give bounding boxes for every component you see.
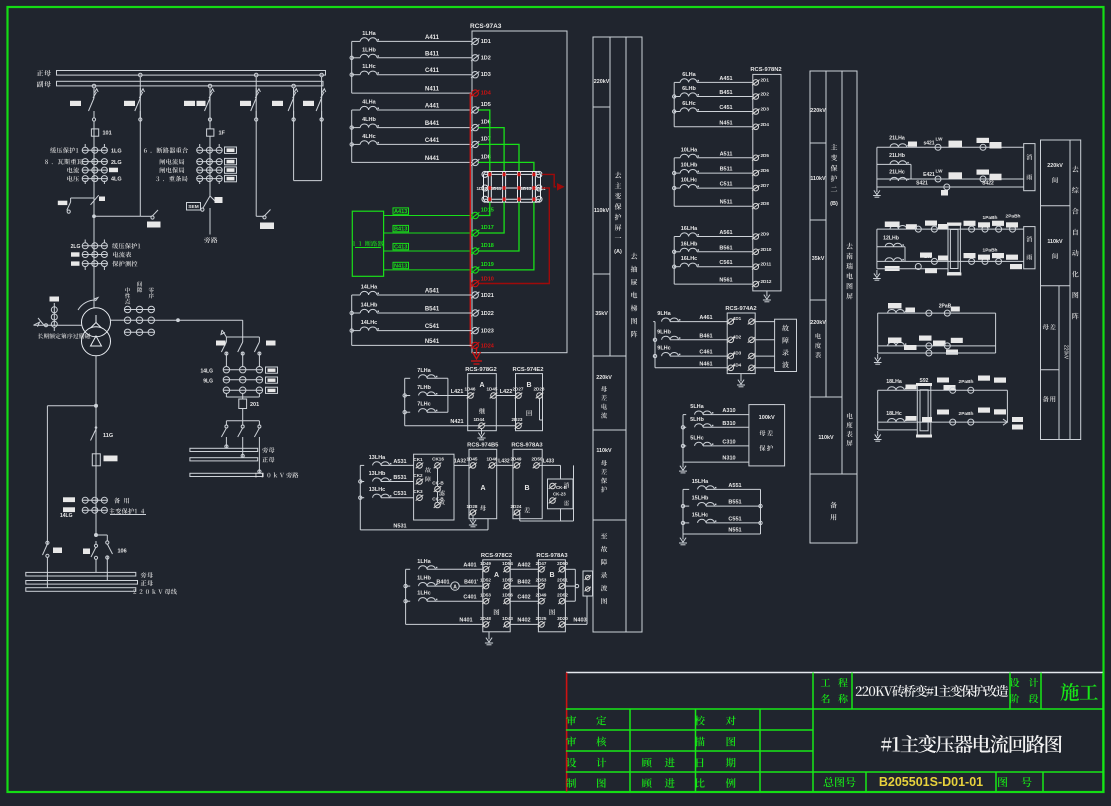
svg-text:N531: N531	[393, 524, 406, 530]
svg-text:9LHb: 9LHb	[657, 329, 671, 335]
svg-text:1D45: 1D45	[467, 457, 478, 462]
svg-text:2D7: 2D7	[761, 183, 770, 188]
svg-text:C441: C441	[425, 138, 440, 144]
svg-text:2LG: 2LG	[71, 244, 81, 250]
svg-text:3D20: 3D20	[557, 616, 568, 621]
svg-text:1D56: 1D56	[502, 593, 513, 598]
svg-text:21LHc: 21LHc	[889, 170, 905, 176]
svg-text:2D25: 2D25	[536, 616, 547, 621]
svg-text:1D24: 1D24	[481, 343, 495, 349]
svg-text:13LHb: 13LHb	[369, 471, 386, 477]
svg-text:C402: C402	[517, 594, 530, 600]
svg-text:RCS-974A2: RCS-974A2	[725, 306, 756, 312]
svg-text:A402: A402	[517, 563, 530, 569]
svg-text:106: 106	[118, 549, 127, 555]
svg-text:B461: B461	[699, 333, 712, 339]
svg-text:A461: A461	[699, 315, 712, 321]
svg-text:A: A	[479, 382, 484, 389]
svg-text:10LHb: 10LHb	[681, 163, 698, 169]
svg-text:2D8: 2D8	[761, 201, 770, 206]
svg-text:RCS-978A3: RCS-978A3	[511, 443, 543, 449]
svg-text:1D43: 1D43	[502, 616, 513, 621]
svg-text:21LHb: 21LHb	[889, 153, 905, 159]
svg-text:2D3: 2D3	[761, 107, 770, 112]
svg-text:S422: S422	[982, 181, 994, 187]
svg-text:9LHa: 9LHa	[657, 311, 671, 317]
svg-text:2D10: 2D10	[761, 247, 772, 252]
svg-text:5LHb: 5LHb	[690, 417, 704, 423]
svg-text:N561: N561	[719, 278, 732, 284]
svg-text:1D21: 1D21	[481, 293, 494, 299]
svg-text:220kV: 220kV	[810, 108, 826, 114]
svg-text:N461: N461	[699, 361, 712, 367]
svg-text:5LHc: 5LHc	[690, 435, 703, 441]
svg-text:2PaBh: 2PaBh	[959, 411, 974, 417]
svg-text:N402: N402	[517, 618, 530, 624]
svg-text:10LHc: 10LHc	[681, 178, 698, 184]
svg-text:1F: 1F	[219, 131, 226, 137]
svg-text:SEM: SEM	[188, 204, 198, 210]
svg-text:s421: s421	[923, 141, 934, 147]
svg-text:1D28: 1D28	[467, 504, 478, 509]
svg-text:2D24: 2D24	[511, 504, 522, 509]
svg-text:1D11: 1D11	[491, 186, 502, 191]
svg-text:2D51: 2D51	[557, 578, 568, 583]
svg-text:1D15: 1D15	[481, 208, 494, 214]
svg-text:2D50: 2D50	[557, 561, 568, 566]
svg-text:15LHa: 15LHa	[692, 479, 709, 485]
svg-text:110kV: 110kV	[594, 208, 610, 214]
svg-text:1D52: 1D52	[480, 578, 491, 583]
svg-text:1LHb: 1LHb	[417, 576, 431, 582]
svg-text:B441: B441	[425, 121, 440, 127]
svg-text:16LHa: 16LHa	[681, 226, 698, 232]
svg-text:1D10: 1D10	[481, 277, 494, 283]
svg-text:CK-B: CK-B	[432, 497, 444, 502]
svg-text:1LHb: 1LHb	[362, 47, 376, 53]
svg-text:B401': B401'	[464, 580, 478, 586]
svg-text:4D1: 4D1	[733, 316, 742, 321]
svg-text:220kV: 220kV	[594, 79, 610, 85]
svg-text:1D18: 1D18	[481, 243, 494, 249]
svg-text:LW: LW	[936, 137, 944, 142]
svg-text:7LHb: 7LHb	[417, 385, 431, 391]
svg-text:N551: N551	[728, 528, 741, 534]
svg-text:35kV: 35kV	[595, 311, 608, 317]
svg-text:1LHa: 1LHa	[362, 31, 376, 37]
svg-text:A531: A531	[393, 459, 406, 465]
svg-text:1D23: 1D23	[481, 329, 494, 335]
svg-text:2PaBh: 2PaBh	[959, 379, 974, 385]
svg-text:110kV: 110kV	[810, 176, 826, 182]
svg-text:4LHc: 4LHc	[362, 134, 375, 140]
svg-text:2PaB: 2PaB	[939, 304, 952, 310]
svg-text:101: 101	[103, 131, 112, 137]
svg-text:12LHb: 12LHb	[883, 236, 899, 242]
svg-text:220kV: 220kV	[810, 320, 826, 326]
svg-text:N403: N403	[573, 618, 586, 624]
svg-text:9LHc: 9LHc	[657, 346, 670, 352]
svg-text:1D55: 1D55	[502, 578, 513, 583]
svg-text:LW: LW	[936, 169, 944, 174]
svg-text:B411: B411	[425, 51, 440, 57]
svg-text:A561: A561	[719, 230, 732, 236]
svg-text:18LHa: 18LHa	[886, 379, 902, 385]
svg-text:A: A	[480, 485, 485, 492]
svg-text:35kV: 35kV	[812, 256, 825, 262]
svg-text:2D11: 2D11	[761, 262, 772, 267]
svg-text:A441: A441	[425, 104, 440, 110]
svg-text:2LG: 2LG	[111, 160, 122, 166]
svg-text:14LG: 14LG	[60, 513, 73, 519]
svg-text:7LHa: 7LHa	[417, 368, 431, 374]
svg-text:L433: L433	[543, 459, 555, 465]
svg-text:100kV: 100kV	[759, 415, 775, 421]
svg-text:2D6: 2D6	[761, 168, 770, 173]
svg-text:E421: E421	[923, 172, 935, 178]
svg-text:1D53: 1D53	[480, 593, 491, 598]
svg-text:2D27: 2D27	[513, 387, 524, 392]
svg-text:B551: B551	[728, 500, 741, 506]
svg-text:1LG: 1LG	[111, 149, 122, 155]
svg-text:N411: N411	[425, 87, 440, 93]
svg-text:L421: L421	[451, 389, 464, 395]
svg-text:9LG: 9LG	[203, 379, 213, 385]
svg-text:4LG: 4LG	[111, 177, 122, 183]
svg-text:C310: C310	[722, 439, 735, 445]
svg-text:C511: C511	[720, 182, 733, 188]
svg-text:4LHa: 4LHa	[362, 100, 376, 106]
svg-text:C541: C541	[425, 324, 440, 330]
svg-text:1PaBh: 1PaBh	[983, 215, 998, 221]
svg-text:B541: B541	[425, 307, 440, 313]
svg-text:1D45: 1D45	[487, 387, 498, 392]
svg-text:B413: B413	[394, 227, 407, 233]
svg-text:C411: C411	[425, 68, 440, 74]
svg-text:B511: B511	[720, 167, 733, 173]
svg-text:C461: C461	[699, 350, 712, 356]
svg-text:1D4: 1D4	[481, 91, 492, 97]
svg-text:5LHa: 5LHa	[690, 404, 704, 410]
svg-text:CK16: CK16	[432, 457, 444, 462]
svg-text:B: B	[549, 572, 554, 579]
svg-text:2D47: 2D47	[536, 561, 547, 566]
svg-text:N451: N451	[719, 120, 732, 126]
svg-text:A: A	[494, 572, 499, 579]
svg-text:CK-23: CK-23	[553, 492, 566, 497]
svg-text:2PaBh: 2PaBh	[1006, 214, 1021, 220]
svg-text:S421: S421	[916, 181, 928, 187]
svg-text:A310: A310	[722, 408, 735, 414]
svg-text:18LHc: 18LHc	[886, 411, 902, 417]
svg-text:1D19: 1D19	[481, 262, 494, 268]
svg-text:1D44: 1D44	[474, 417, 485, 422]
svg-text:N511: N511	[720, 200, 733, 206]
svg-text:220kV: 220kV	[596, 375, 612, 381]
svg-text:14LHb: 14LHb	[361, 303, 378, 309]
svg-text:14LHa: 14LHa	[361, 285, 378, 291]
svg-text:16LHc: 16LHc	[681, 256, 698, 262]
svg-text:4D2: 4D2	[733, 334, 742, 339]
svg-text:6LHa: 6LHa	[682, 72, 696, 78]
svg-text:15LHc: 15LHc	[692, 512, 709, 518]
svg-text:1LHc: 1LHc	[362, 64, 375, 70]
svg-text:CK-B: CK-B	[432, 481, 444, 486]
svg-text:6LHc: 6LHc	[682, 101, 695, 107]
svg-text:2D5: 2D5	[761, 153, 770, 158]
svg-text:1PaBh: 1PaBh	[983, 248, 998, 254]
svg-text:1A32: 1A32	[454, 459, 466, 465]
svg-text:1D2: 1D2	[481, 55, 491, 61]
svg-text:1D13: 1D13	[521, 186, 532, 191]
svg-text:(A): (A)	[614, 249, 622, 255]
svg-text:1LHa: 1LHa	[417, 559, 431, 565]
svg-text:B310: B310	[722, 421, 735, 427]
svg-text:CK2: CK2	[413, 473, 423, 478]
svg-text:A541: A541	[425, 289, 440, 295]
svg-text:4LHb: 4LHb	[362, 117, 376, 123]
svg-text:1D46: 1D46	[465, 387, 476, 392]
svg-text:1D22: 1D22	[481, 311, 494, 317]
svg-text:2D1: 2D1	[761, 77, 770, 82]
svg-text:14LHc: 14LHc	[361, 320, 378, 326]
svg-text:A551: A551	[728, 483, 741, 489]
svg-text:2D4: 2D4	[761, 122, 770, 127]
svg-text:CK-B: CK-B	[556, 485, 567, 490]
svg-text:1D3: 1D3	[481, 72, 491, 78]
svg-text:1D49: 1D49	[480, 561, 491, 566]
svg-text:1D5: 1D5	[481, 102, 491, 108]
svg-text:13LHa: 13LHa	[369, 455, 386, 461]
svg-text:21LHa: 21LHa	[889, 136, 905, 142]
svg-text:220kV: 220kV	[1063, 345, 1069, 360]
svg-text:220kV: 220kV	[1047, 163, 1063, 169]
svg-text:C551: C551	[728, 516, 741, 522]
svg-text:C413: C413	[394, 245, 407, 251]
svg-text:A451: A451	[719, 76, 732, 82]
svg-text:2D48: 2D48	[480, 616, 491, 621]
svg-text:2D49: 2D49	[536, 593, 547, 598]
svg-text:B402: B402	[517, 579, 530, 585]
svg-text:11G: 11G	[103, 433, 113, 439]
svg-text:CK1: CK1	[413, 457, 423, 462]
svg-text:2D52: 2D52	[557, 593, 568, 598]
svg-text:C531: C531	[393, 491, 406, 497]
svg-text:1LHc: 1LHc	[417, 591, 430, 597]
svg-text:2D12: 2D12	[761, 279, 772, 284]
svg-text:A413: A413	[394, 209, 407, 215]
svg-text:N310: N310	[722, 456, 735, 462]
svg-text:N421: N421	[450, 419, 463, 425]
svg-text:N401: N401	[459, 618, 472, 624]
svg-text:14LG: 14LG	[200, 369, 213, 375]
svg-text:A511: A511	[720, 151, 733, 157]
svg-text:1D12: 1D12	[477, 186, 488, 191]
svg-text:2D50: 2D50	[532, 457, 543, 462]
svg-text:1D54: 1D54	[502, 561, 513, 566]
svg-text:6LHb: 6LHb	[682, 86, 696, 92]
svg-text:1D1: 1D1	[481, 39, 491, 45]
svg-text:B531: B531	[393, 475, 406, 481]
svg-text:2D23: 2D23	[512, 417, 523, 422]
svg-text:4D4: 4D4	[733, 362, 742, 367]
svg-text:16LHb: 16LHb	[681, 241, 698, 247]
svg-text:7LHc: 7LHc	[417, 402, 430, 408]
svg-text:(B): (B)	[830, 201, 838, 207]
svg-text:CK3: CK3	[413, 489, 423, 494]
svg-text:110kV: 110kV	[1047, 239, 1063, 245]
svg-text:L432: L432	[498, 459, 510, 465]
svg-text:1D17: 1D17	[481, 225, 494, 231]
svg-text:A: A	[453, 585, 457, 591]
svg-text:B401: B401	[436, 580, 449, 586]
svg-text:15LHb: 15LHb	[692, 496, 709, 502]
svg-text:N541: N541	[425, 339, 440, 345]
svg-text:RCS-974B5: RCS-974B5	[467, 443, 499, 449]
svg-text:2D28: 2D28	[534, 387, 545, 392]
svg-text:1D46: 1D46	[487, 457, 498, 462]
svg-text:B: B	[524, 485, 529, 492]
svg-text:L422: L422	[500, 389, 513, 395]
svg-text:2D9: 2D9	[761, 232, 770, 237]
svg-text:110kV: 110kV	[596, 448, 612, 454]
svg-text:110kV: 110kV	[818, 435, 834, 441]
svg-text:RCS-978N2: RCS-978N2	[750, 67, 781, 73]
svg-text:N441: N441	[425, 156, 440, 162]
svg-text:2D2: 2D2	[761, 92, 770, 97]
svg-text:C561: C561	[719, 260, 732, 266]
svg-text:10LHa: 10LHa	[681, 147, 698, 153]
svg-text:B561: B561	[719, 245, 732, 251]
svg-text:A401: A401	[463, 563, 476, 569]
svg-text:2D49: 2D49	[511, 457, 522, 462]
svg-text:RCS-974E2: RCS-974E2	[513, 367, 544, 373]
svg-text:C401: C401	[463, 595, 476, 601]
svg-text:RCS-978A3: RCS-978A3	[536, 553, 568, 559]
svg-text:4D3: 4D3	[733, 351, 742, 356]
svg-text:N413: N413	[394, 264, 407, 270]
svg-text:A411: A411	[425, 35, 440, 41]
svg-text:C451: C451	[719, 105, 732, 111]
svg-text:2D53: 2D53	[536, 578, 547, 583]
svg-text:B205501S-D01-01: B205501S-D01-01	[879, 775, 983, 789]
svg-text:B451: B451	[719, 90, 732, 96]
svg-text:RCS-97A3: RCS-97A3	[470, 23, 502, 30]
svg-text:B: B	[526, 382, 531, 389]
svg-text:RCS-978G2: RCS-978G2	[465, 367, 497, 373]
svg-text:201: 201	[250, 402, 259, 408]
svg-text:RCS-978C2: RCS-978C2	[481, 553, 512, 559]
svg-text:13LHc: 13LHc	[369, 487, 386, 493]
